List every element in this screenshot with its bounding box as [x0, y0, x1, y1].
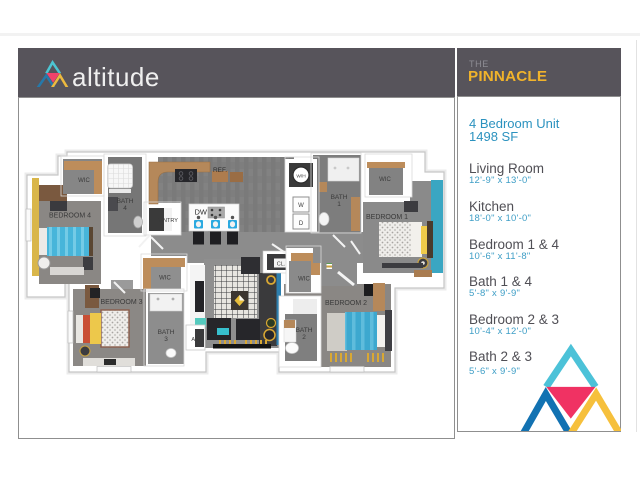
svg-text:BATH: BATH: [296, 327, 313, 334]
svg-text:BEDROOM 4: BEDROOM 4: [49, 213, 91, 220]
svg-text:4: 4: [123, 205, 127, 212]
svg-text:PANTRY: PANTRY: [156, 218, 178, 224]
svg-text:WIC: WIC: [78, 178, 90, 184]
svg-text:DW: DW: [195, 208, 208, 217]
svg-text:W/H: W/H: [296, 174, 306, 180]
svg-text:WIC: WIC: [298, 277, 310, 283]
svg-text:A/H: A/H: [191, 337, 200, 343]
svg-text:BEDROOM 2: BEDROOM 2: [325, 300, 367, 307]
svg-text:WIC: WIC: [159, 276, 171, 282]
svg-text:D: D: [299, 221, 304, 227]
svg-text:BEDROOM 1: BEDROOM 1: [366, 214, 408, 221]
svg-text:1: 1: [337, 201, 341, 208]
svg-text:3: 3: [164, 336, 168, 343]
svg-text:BATH: BATH: [331, 194, 348, 201]
svg-text:BEDROOM 3: BEDROOM 3: [100, 299, 142, 306]
svg-text:W: W: [298, 203, 304, 209]
svg-text:2: 2: [302, 334, 306, 341]
svg-text:REF.: REF.: [213, 167, 227, 174]
svg-text:BATH: BATH: [117, 198, 134, 205]
svg-text:BATH: BATH: [158, 329, 175, 336]
svg-text:CL.: CL.: [277, 262, 286, 268]
svg-text:WIC: WIC: [379, 177, 391, 183]
